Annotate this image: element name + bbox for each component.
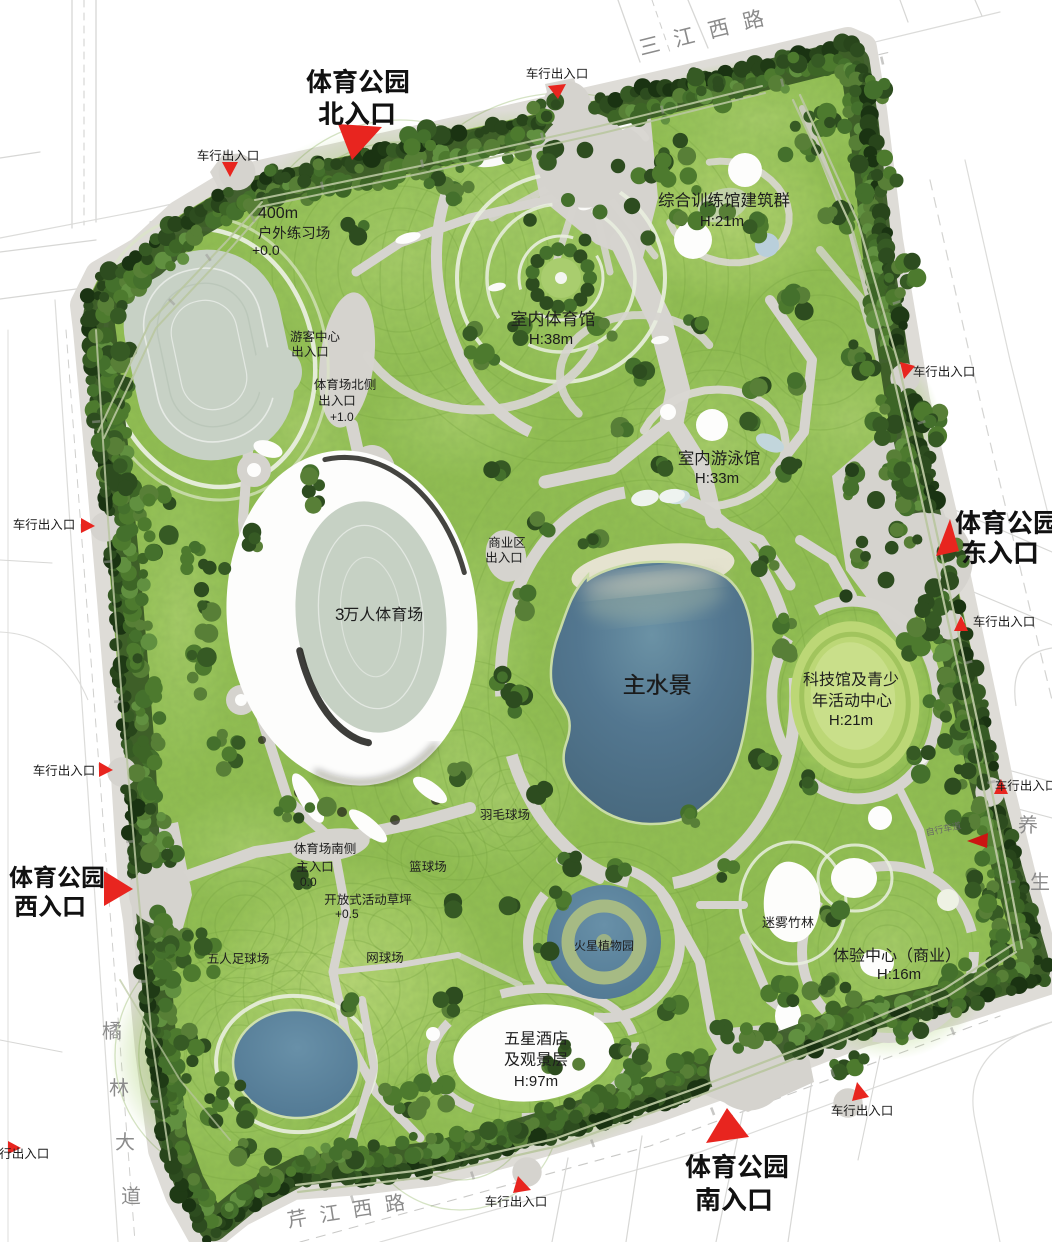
svg-text:H:16m: H:16m <box>877 966 921 983</box>
svg-text:H:33m: H:33m <box>695 470 739 487</box>
svg-text:+0.0: +0.0 <box>252 242 280 258</box>
svg-text:H:38m: H:38m <box>529 331 573 348</box>
svg-text:0.0: 0.0 <box>300 875 317 889</box>
svg-text:3: 3 <box>335 605 344 624</box>
svg-text:+0.5: +0.5 <box>335 907 359 921</box>
svg-text:H:21m: H:21m <box>829 712 873 729</box>
svg-text:400m: 400m <box>258 205 298 222</box>
svg-text:H:97m: H:97m <box>514 1073 558 1090</box>
svg-text:+1.0: +1.0 <box>330 410 354 424</box>
svg-text:H:21m: H:21m <box>700 213 744 230</box>
